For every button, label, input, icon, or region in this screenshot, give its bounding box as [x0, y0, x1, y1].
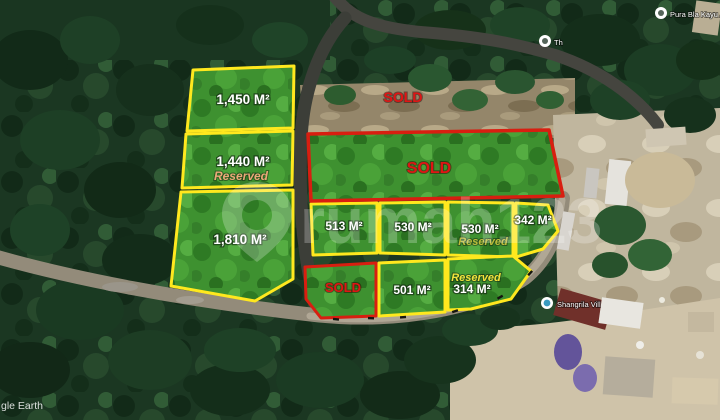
plot-314-area-label: 314 M² — [453, 282, 490, 296]
watermark-brand-text: rumah123 — [300, 185, 602, 257]
plot-1440-area-label: 1,440 M² — [216, 154, 270, 169]
google-earth-attribution: gle Earth — [1, 400, 43, 412]
plot-1450-area-label: 1,450 M² — [216, 92, 270, 107]
sold-top-label: SOLD — [384, 89, 423, 105]
plot-1440-reserved-label: Reserved — [214, 169, 269, 183]
sold-small-label: SOLD — [325, 280, 361, 295]
poi-marker-villa-label: Shangrila Vill — [557, 300, 601, 309]
poi-marker-pura-label: Pura Bla Kayu A — [670, 10, 720, 19]
sold-main-label: SOLD — [407, 160, 451, 177]
poi-marker-th-label: Th — [554, 38, 563, 47]
satellite-land-plot-map: 1,450 M² 1,440 M² Reserved 1,810 M² SOLD… — [0, 0, 720, 420]
satellite-map-canvas: 1,450 M² 1,440 M² Reserved 1,810 M² SOLD… — [0, 0, 720, 420]
plot-501-area-label: 501 M² — [393, 283, 430, 297]
